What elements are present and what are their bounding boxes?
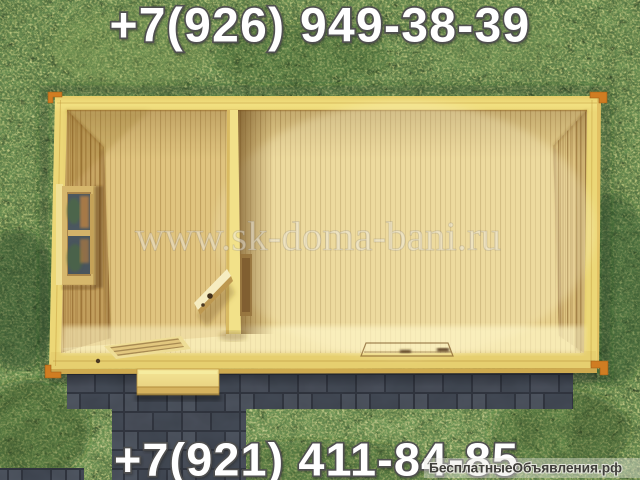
svg-text:БесплатныеОбъявления.рф: БесплатныеОбъявления.рф	[429, 461, 622, 476]
svg-text:www.sk-doma-bani.ru: www.sk-doma-bani.ru	[135, 213, 501, 259]
svg-text:+7(926) 949-38-39: +7(926) 949-38-39	[109, 0, 530, 53]
